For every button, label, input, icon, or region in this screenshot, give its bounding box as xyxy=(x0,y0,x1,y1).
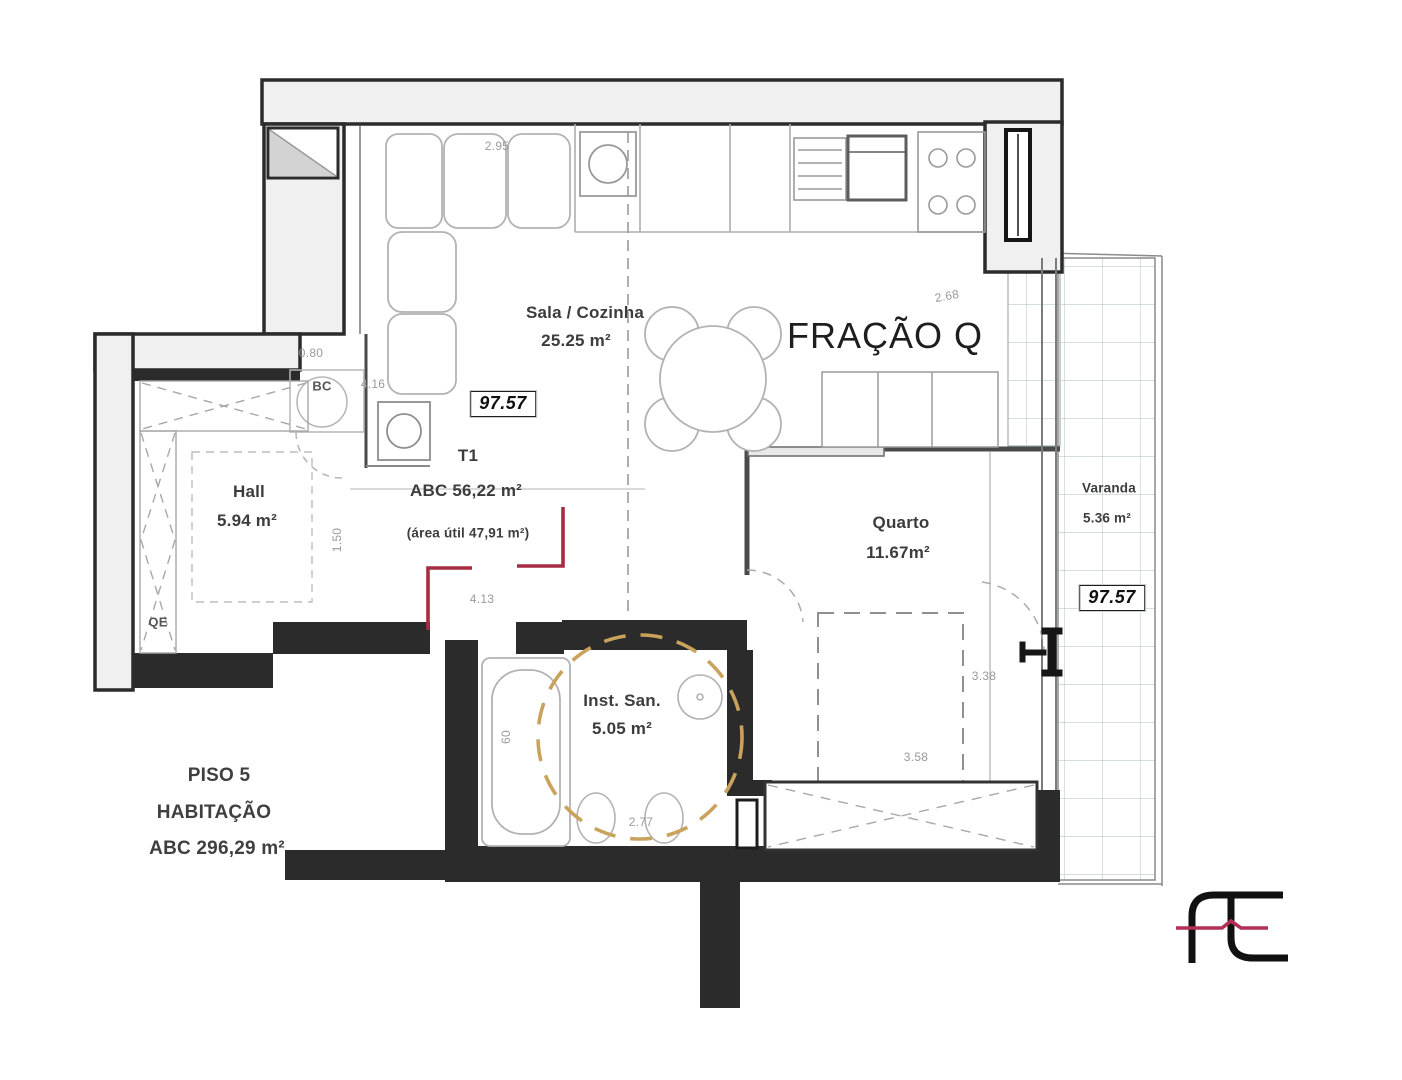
fraction-title: FRAÇÃO Q xyxy=(787,315,983,357)
typology-abc: ABC 56,22 m² xyxy=(410,481,522,501)
closet-top xyxy=(822,372,998,447)
sofa xyxy=(386,134,570,394)
varanda-door-swing xyxy=(982,582,1044,650)
dim-hall: 1.50 xyxy=(330,528,344,553)
room-area-quarto: 11.67m² xyxy=(866,543,930,563)
interior-walls xyxy=(133,370,1060,1008)
typology-label: T1 xyxy=(458,446,478,466)
dim-bc: 0.80 xyxy=(299,346,324,360)
oven-icon xyxy=(848,136,906,200)
elevation-badge-2: 97.57 xyxy=(1079,585,1145,611)
dim-tub: 60 xyxy=(499,730,513,744)
dining-table xyxy=(645,307,781,451)
bathtub-icon xyxy=(482,658,570,846)
window xyxy=(1006,130,1030,240)
room-label-inst: Inst. San. xyxy=(583,691,661,711)
qe-label: QE xyxy=(148,615,167,630)
washbasin-icon xyxy=(678,675,722,719)
dim-quarto-w: 3.58 xyxy=(904,750,929,764)
dishwasher-icon xyxy=(794,138,846,200)
room-label-varanda: Varanda xyxy=(1082,481,1136,496)
dim-bc-right: 4.16 xyxy=(361,377,386,391)
bc-label: BC xyxy=(312,379,331,394)
quarto-door-swing xyxy=(747,570,803,622)
floor-abc: ABC 296,29 m² xyxy=(149,838,285,860)
floor-use: HABITAÇÃO xyxy=(157,802,271,824)
room-area-inst: 5.05 m² xyxy=(592,719,652,739)
elevation-badge-1: 97.57 xyxy=(470,391,536,417)
wardrobe-closet xyxy=(765,782,1037,850)
typology-util: (área útil 47,91 m²) xyxy=(407,526,530,541)
dim-entrance: 4.13 xyxy=(470,592,495,606)
floor-plan-drawing xyxy=(0,0,1402,1080)
room-label-sala: Sala / Cozinha xyxy=(526,303,644,323)
cooktop-icon xyxy=(918,132,985,232)
floor-piso: PISO 5 xyxy=(188,765,250,787)
room-label-hall: Hall xyxy=(233,482,265,502)
dim-bath: 2.77 xyxy=(629,815,654,829)
washing-machine-icon xyxy=(378,402,430,460)
room-area-sala: 25.25 m² xyxy=(541,331,611,351)
dim-kitchen: 2.95 xyxy=(485,139,510,153)
room-area-varanda: 5.36 m² xyxy=(1083,511,1131,526)
shaft-hatch xyxy=(268,128,338,178)
agency-logo xyxy=(1176,895,1288,963)
room-label-quarto: Quarto xyxy=(873,513,930,533)
floor-plan-page: FRAÇÃO Q Sala / Cozinha 25.25 m² Hall 5.… xyxy=(0,0,1402,1080)
dim-quarto-h: 3.38 xyxy=(972,669,997,683)
door-leaf xyxy=(737,800,757,848)
room-area-hall: 5.94 m² xyxy=(217,511,277,531)
